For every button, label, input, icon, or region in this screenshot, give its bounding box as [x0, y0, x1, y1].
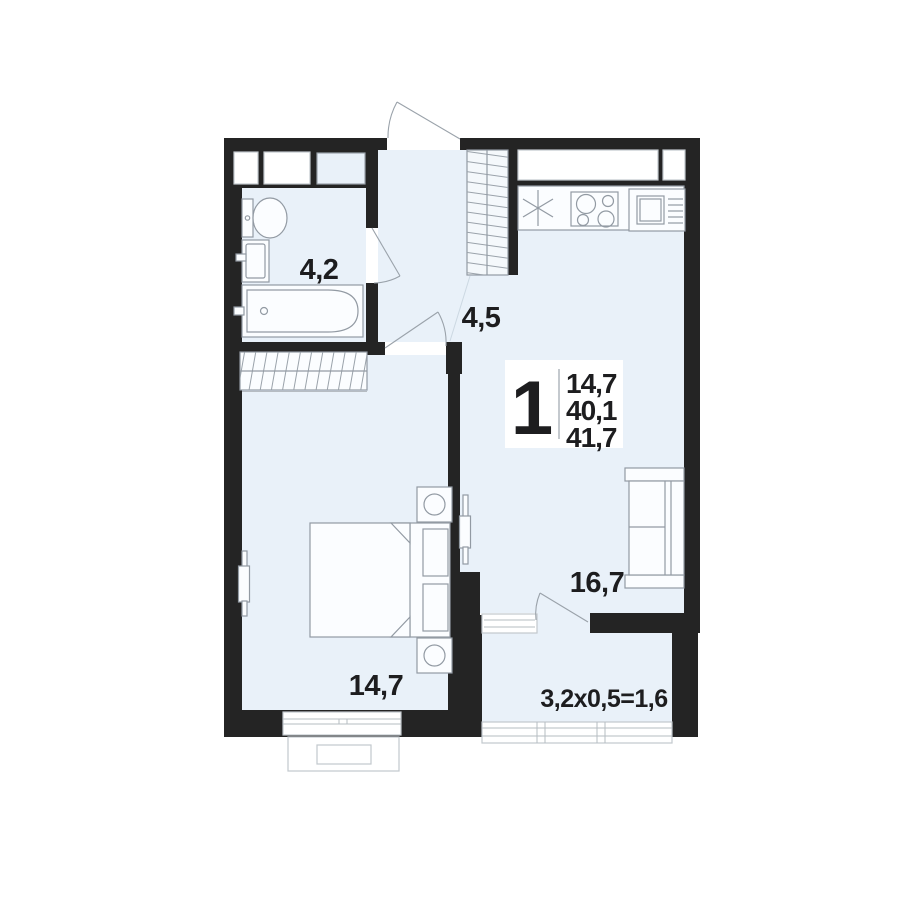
sofa-armrest-bottom [625, 575, 684, 588]
bathroom-area-label: 4,2 [300, 254, 339, 286]
toilet-icon [242, 198, 287, 238]
toilet-tank [242, 199, 253, 237]
wall-right [684, 185, 700, 633]
nightstand-body [417, 638, 452, 673]
sofa-body [629, 481, 684, 575]
hallway-area-label: 4,5 [462, 302, 501, 334]
floor-plan-canvas: 1 14,7 40,1 41,7 4,2 4,5 16,7 14,7 3,2x0… [0, 0, 900, 900]
legend-total-area: 41,7 [566, 422, 617, 453]
entrance-door-leaf [397, 102, 460, 139]
balcony-door-gap [537, 613, 590, 633]
bedroom-window-sill-inner [317, 745, 371, 764]
balcony-dimension-label: 3,2x0,5=1,6 [540, 685, 667, 713]
wall-left [224, 138, 242, 737]
floor-plan-drawing: 1 14,7 40,1 41,7 4,2 4,5 16,7 14,7 3,2x0… [0, 0, 900, 900]
wall-top-right [460, 138, 700, 150]
tv-mount-bottom [463, 547, 468, 564]
wall-balcony-right [672, 613, 698, 737]
sofa-icon [625, 468, 684, 588]
kitchen-window [518, 150, 658, 180]
legend-rooms-count: 1 [511, 366, 553, 451]
wall-wardrobe-divider [508, 150, 518, 275]
bed-body [310, 523, 450, 637]
fridge-icon [629, 189, 685, 231]
bedroom-area-label: 14,7 [349, 670, 403, 702]
hallway-wardrobe [467, 150, 508, 275]
entrance-door [388, 102, 460, 139]
area-legend: 1 14,7 40,1 41,7 [505, 360, 623, 453]
tv-mount-bottom [242, 601, 247, 616]
vent-shaft-2 [264, 152, 310, 184]
nightstand-body [417, 487, 452, 522]
bathtub-icon [234, 285, 363, 337]
wall-partition-thick [448, 572, 480, 615]
entrance-door-swing-arc [388, 102, 397, 138]
living-room-area-label: 16,7 [570, 567, 624, 599]
vent-shaft-1 [234, 152, 258, 184]
tv-screen [460, 516, 471, 548]
sofa-armrest-top [625, 468, 684, 481]
wall-top-right-corner [685, 150, 700, 185]
bathtub-faucet [234, 307, 244, 315]
wall-window-mullion [658, 150, 663, 180]
corner-window [663, 150, 685, 180]
bed-icon [310, 523, 450, 637]
bathroom-cabinet [317, 153, 365, 184]
wall-under-window [518, 180, 700, 186]
sink-faucet [236, 254, 246, 261]
tv-mount-top [463, 495, 468, 517]
toilet-bowl [253, 198, 287, 238]
tv-screen [239, 566, 250, 602]
hallway-floor [378, 150, 467, 342]
balcony-window [482, 614, 537, 633]
kitchen-counter [518, 186, 685, 231]
wall-top-left [224, 138, 387, 150]
wall-bathroom-right-upper [366, 150, 378, 228]
bedroom-wardrobe [240, 352, 367, 392]
nightstand-bottom [417, 638, 452, 673]
balcony-glazing [482, 722, 672, 743]
nightstand-top [417, 487, 452, 522]
